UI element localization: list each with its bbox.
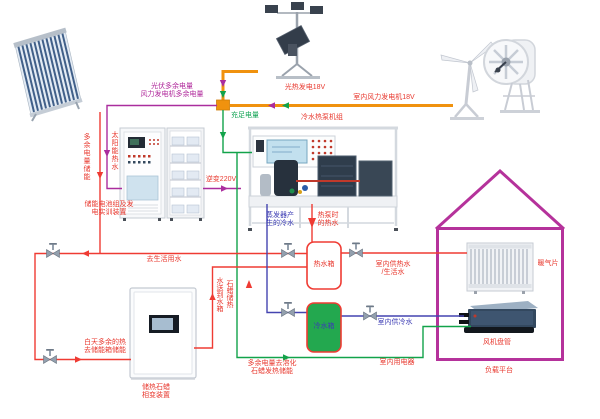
cold-water-lines bbox=[267, 204, 464, 316]
valve-storage-line bbox=[44, 349, 57, 364]
heat-pump-figure bbox=[248, 128, 398, 231]
hot-water-tank bbox=[307, 242, 341, 289]
generator-bus-lines bbox=[223, 72, 453, 106]
cold-water-tank bbox=[307, 303, 341, 352]
valve-hot-tank-out bbox=[350, 243, 363, 258]
battery-cabinet-figure bbox=[120, 128, 165, 221]
radiator-figure bbox=[467, 243, 533, 294]
valve-cold-tank-in bbox=[282, 302, 295, 317]
paraffin-cabinet-figure bbox=[130, 288, 196, 379]
storage-rack-figure bbox=[167, 128, 204, 221]
solar-collector-figure bbox=[14, 30, 82, 121]
valve-hot-tank-in bbox=[282, 243, 295, 258]
power-junction-box bbox=[217, 100, 230, 110]
diagram-artwork bbox=[0, 0, 600, 419]
pv-tracker-figure bbox=[265, 2, 323, 79]
valve-cold-tank-out bbox=[364, 306, 377, 321]
hvac-energy-system-diagram: 光伏多余电量 风力发电机多余电量 充足电量 光热发电18V 室内风力发电机18V… bbox=[0, 0, 600, 419]
fan-coil-figure bbox=[459, 301, 538, 333]
wind-tunnel-fan-figure bbox=[484, 40, 540, 113]
valve-domestic-line bbox=[47, 243, 60, 258]
